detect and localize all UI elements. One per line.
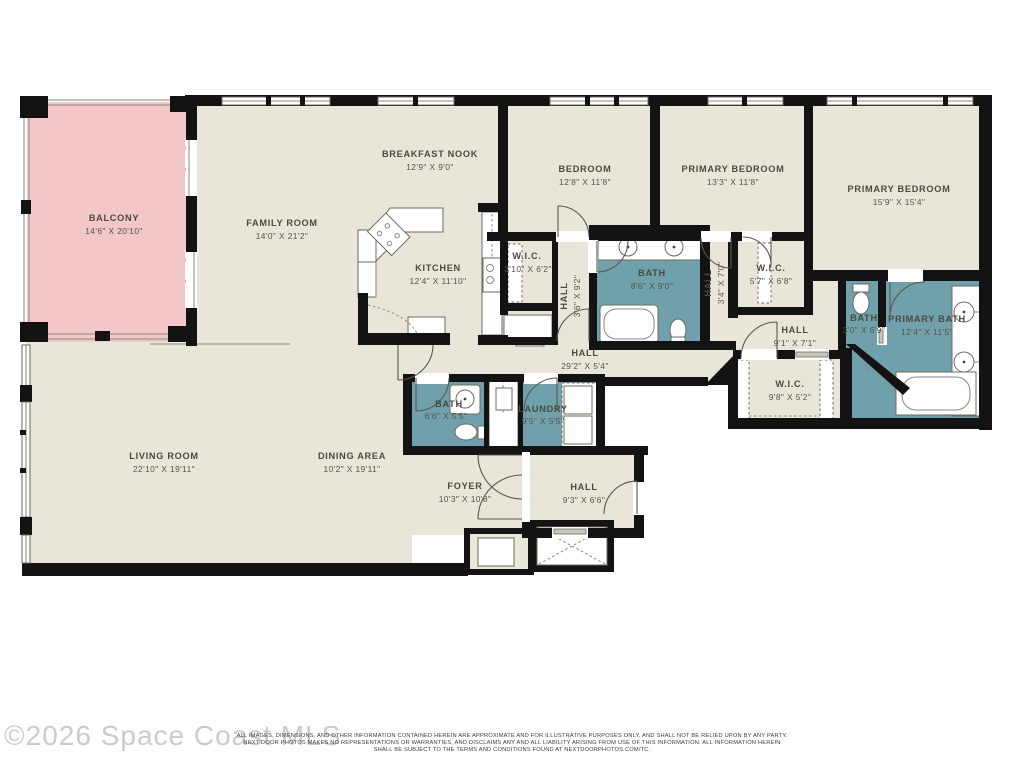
primary-tub-icon — [896, 372, 976, 415]
svg-text:LAUNDRY: LAUNDRY — [518, 404, 567, 414]
svg-text:BEDROOM: BEDROOM — [559, 164, 612, 174]
svg-text:14'0" X 21'2": 14'0" X 21'2" — [256, 231, 309, 241]
svg-text:PRIMARY BEDROOM: PRIMARY BEDROOM — [848, 184, 951, 194]
svg-text:HALL: HALL — [781, 325, 808, 335]
svg-text:BALCONY: BALCONY — [89, 213, 139, 223]
svg-text:HALL: HALL — [703, 269, 713, 296]
svg-text:BREAKFAST NOOK: BREAKFAST NOOK — [382, 149, 478, 159]
svg-text:DINING AREA: DINING AREA — [318, 451, 386, 461]
svg-text:W.I.C.: W.I.C. — [512, 251, 541, 261]
bath3-toilet-icon — [455, 424, 477, 440]
svg-text:W.I.C.: W.I.C. — [756, 263, 785, 273]
svg-text:HALL: HALL — [559, 282, 569, 309]
svg-text:NEXT DOOR PHOTOS MAKES NO REPR: NEXT DOOR PHOTOS MAKES NO REPRESENTATION… — [243, 740, 780, 746]
svg-text:ALL IMAGES, DIMENSIONS, AND OT: ALL IMAGES, DIMENSIONS, AND OTHER INFORM… — [237, 733, 788, 739]
svg-text:HALL: HALL — [571, 348, 598, 358]
svg-text:12'9" X 9'0": 12'9" X 9'0" — [406, 162, 453, 172]
svg-text:3'6" X 9'2": 3'6" X 9'2" — [572, 275, 582, 317]
bath1-tub-icon — [600, 305, 658, 343]
floor-plan-page: BALCONY14'6" X 20'10" FAMILY ROOM14'0" X… — [0, 0, 1024, 768]
svg-text:BATH: BATH — [435, 399, 463, 409]
svg-text:9'5" X 5'5": 9'5" X 5'5" — [522, 416, 564, 426]
dryer-icon — [564, 416, 592, 444]
washer-icon — [564, 386, 592, 414]
svg-text:9'1" X 7'1": 9'1" X 7'1" — [774, 338, 816, 348]
svg-text:HALL: HALL — [570, 482, 597, 492]
svg-text:FOYER: FOYER — [447, 481, 482, 491]
svg-text:PRIMARY BATH: PRIMARY BATH — [888, 314, 966, 324]
svg-text:8'6" X 9'0": 8'6" X 9'0" — [631, 281, 673, 291]
svg-text:12'8" X 11'8": 12'8" X 11'8" — [559, 177, 611, 187]
svg-text:LIVING ROOM: LIVING ROOM — [129, 451, 198, 461]
svg-text:10'2" X 19'11": 10'2" X 19'11" — [324, 464, 381, 474]
left-windows — [20, 345, 32, 563]
svg-text:6'6" X 5'5": 6'6" X 5'5" — [425, 411, 467, 421]
svg-text:12'4" X 11'10": 12'4" X 11'10" — [410, 276, 467, 286]
svg-text:10'3" X 10'8": 10'3" X 10'8" — [439, 494, 492, 504]
svg-text:13'3" X 11'8": 13'3" X 11'8" — [707, 177, 759, 187]
svg-text:29'2" X 5'4": 29'2" X 5'4" — [561, 361, 608, 371]
svg-text:3'0" X 6'9": 3'0" X 6'9" — [843, 325, 885, 335]
wic3-closet-rod-right — [820, 360, 833, 420]
svg-text:15'9" X 15'4": 15'9" X 15'4" — [873, 197, 926, 207]
svg-text:W.I.C.: W.I.C. — [775, 379, 804, 389]
svg-text:FAMILY ROOM: FAMILY ROOM — [246, 218, 318, 228]
svg-text:9'3" X 6'6": 9'3" X 6'6" — [563, 495, 605, 505]
svg-text:9'8" X 5'2": 9'8" X 5'2" — [769, 392, 811, 402]
svg-text:14'6" X 20'10": 14'6" X 20'10" — [85, 226, 143, 236]
svg-text:3'10" X 6'2": 3'10" X 6'2" — [504, 264, 551, 274]
svg-text:KITCHEN: KITCHEN — [415, 263, 461, 273]
svg-text:12'4" X 11'5": 12'4" X 11'5" — [901, 327, 953, 337]
wic2-closet-rod — [758, 243, 771, 303]
svg-text:BATH: BATH — [638, 268, 666, 278]
svg-text:SHALL BE SUBJECT TO THE TERMS: SHALL BE SUBJECT TO THE TERMS AND CONDIT… — [374, 747, 651, 753]
svg-text:5'7" X 6'8": 5'7" X 6'8" — [750, 276, 792, 286]
svg-text:PRIMARY BEDROOM: PRIMARY BEDROOM — [682, 164, 785, 174]
svg-text:BATH: BATH — [850, 313, 878, 323]
svg-text:22'10" X 19'11": 22'10" X 19'11" — [133, 464, 195, 474]
bath2-toilet-icon — [853, 292, 869, 314]
svg-text:3'4" X 7'0": 3'4" X 7'0" — [716, 262, 726, 304]
floor-plan-drawing: BALCONY14'6" X 20'10" FAMILY ROOM14'0" X… — [0, 0, 1024, 768]
